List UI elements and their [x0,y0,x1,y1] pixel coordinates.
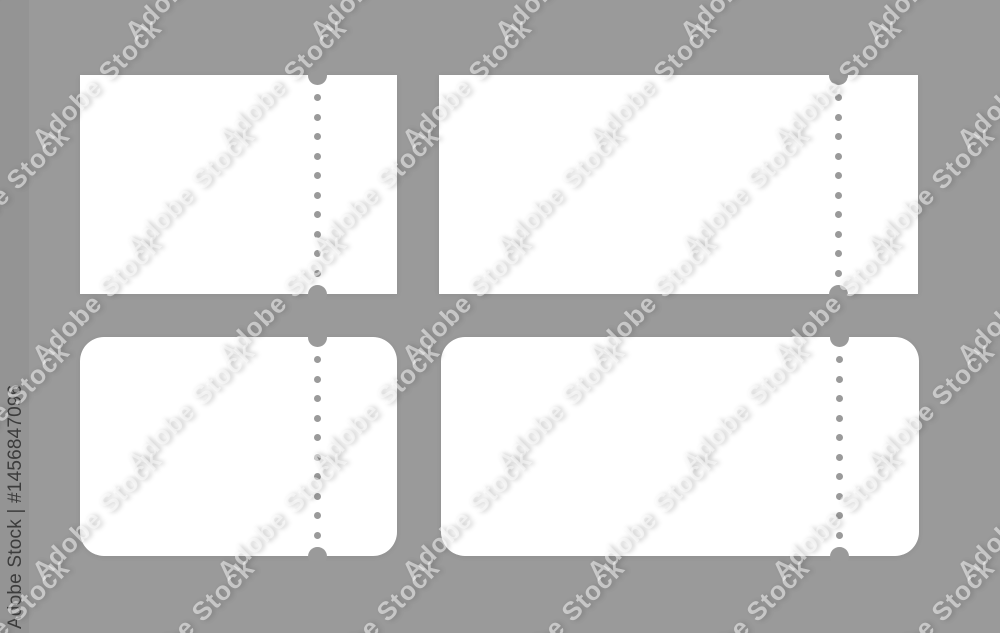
perforation-dot [835,250,842,257]
perforation-dot [314,473,321,480]
perforation-dot [314,172,321,179]
perforation-dot [836,512,843,519]
perforation-dot [314,415,321,422]
perforation-notch-bottom [830,547,849,566]
perforation-dot [836,532,843,539]
perforation-dot [314,94,321,101]
perforation-notch-top [308,66,327,85]
perforation-dot [314,434,321,441]
perforation-dot [314,532,321,539]
perforation-notch-top [829,66,848,85]
perforation-dot [314,231,321,238]
perforation-dot [836,473,843,480]
perforation-dot [314,512,321,519]
perforation-dot [314,395,321,402]
perforation-dot [314,454,321,461]
perforation-dot [314,250,321,257]
perforation-dot [314,376,321,383]
perforation-dotted-line [314,356,321,539]
perforation-dot [836,395,843,402]
perforation-dot [314,192,321,199]
perforation-dot [314,493,321,500]
perforation-dot [835,133,842,140]
perforation-dot [314,153,321,160]
perforation-dot [835,114,842,121]
ticket-blank-rectangular-large [439,75,918,294]
perforation-dot [835,94,842,101]
perforation-notch-top [308,328,327,347]
perforation-dot [314,114,321,121]
stock-image-canvas: Adobe Stock | #1456847096 Adobe StockAdo… [0,0,1000,633]
perforation-dot [836,454,843,461]
tickets-layer [0,0,1000,633]
ticket-blank-rounded-small [80,337,397,556]
perforation-dot [314,270,321,277]
perforation-dot [836,434,843,441]
perforation-dot [835,192,842,199]
perforation-dot [836,356,843,363]
perforation-dot [836,493,843,500]
perforation-dot [835,270,842,277]
ticket-blank-rectangular-small [80,75,397,294]
perforation-dot [314,133,321,140]
perforation-dot [835,231,842,238]
perforation-dotted-line [836,356,843,539]
perforation-dot [835,211,842,218]
perforation-dot [314,356,321,363]
perforation-dotted-line [314,94,321,277]
perforation-notch-bottom [308,547,327,566]
perforation-notch-bottom [829,285,848,304]
perforation-notch-bottom [308,285,327,304]
perforation-dot [314,211,321,218]
perforation-dotted-line [835,94,842,277]
ticket-blank-rounded-large [441,337,919,556]
perforation-dot [835,172,842,179]
perforation-notch-top [830,328,849,347]
perforation-dot [836,376,843,383]
perforation-dot [836,415,843,422]
perforation-dot [835,153,842,160]
